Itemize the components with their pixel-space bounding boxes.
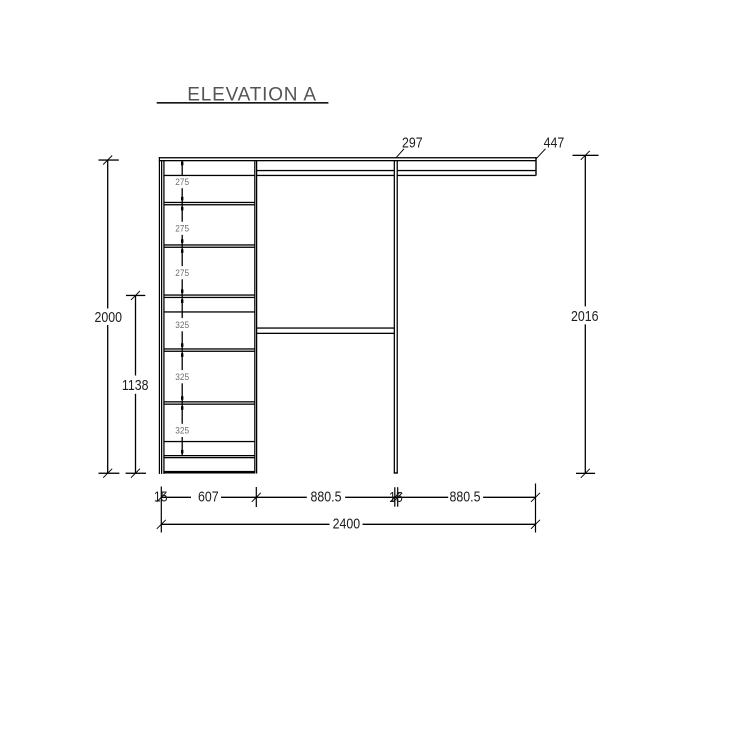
svg-text:2000: 2000 (94, 309, 122, 325)
svg-text:325: 325 (175, 372, 189, 383)
svg-text:15: 15 (389, 489, 403, 505)
svg-text:1138: 1138 (122, 377, 149, 393)
svg-text:2016: 2016 (571, 308, 599, 324)
svg-text:607: 607 (198, 488, 219, 504)
svg-text:880.5: 880.5 (450, 489, 481, 505)
svg-text:297: 297 (402, 135, 423, 151)
svg-text:15: 15 (154, 488, 168, 504)
svg-text:447: 447 (544, 135, 565, 151)
svg-text:2400: 2400 (333, 516, 361, 532)
svg-text:275: 275 (175, 268, 189, 279)
svg-text:880.5: 880.5 (311, 489, 342, 505)
svg-text:275: 275 (175, 176, 189, 187)
svg-text:325: 325 (175, 425, 189, 436)
svg-text:275: 275 (175, 223, 189, 234)
svg-text:325: 325 (175, 320, 189, 331)
